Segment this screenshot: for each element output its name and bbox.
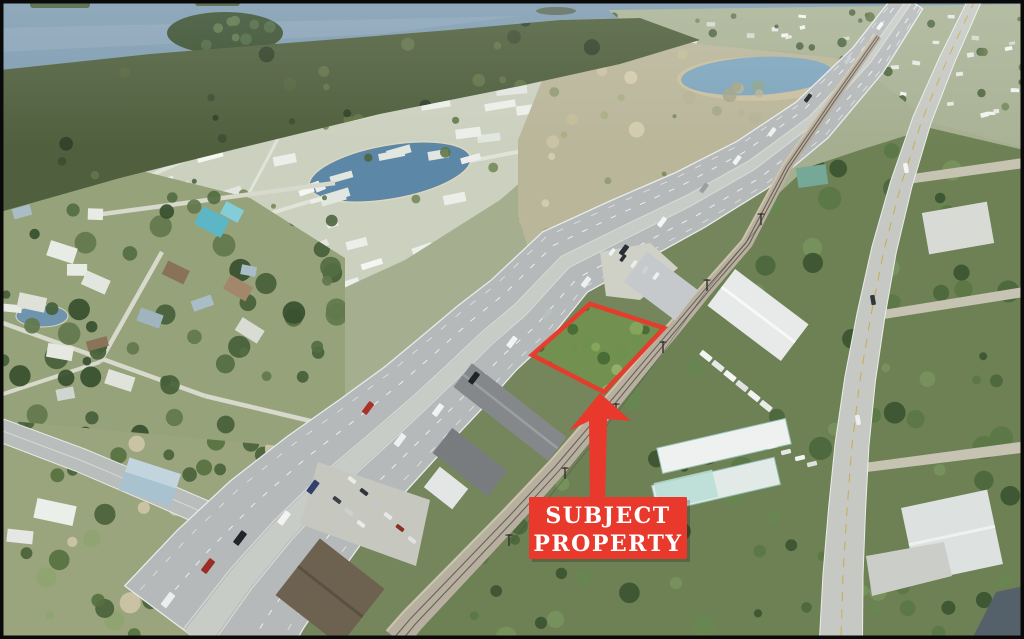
label-line-2: PROPERTY: [533, 531, 682, 557]
haze: [0, 0, 1024, 150]
label-line-1: SUBJECT: [545, 503, 670, 529]
aerial-photo: SUBJECT PROPERTY: [0, 0, 1024, 639]
teal-roof-building: [796, 164, 828, 188]
shed: [6, 529, 33, 545]
